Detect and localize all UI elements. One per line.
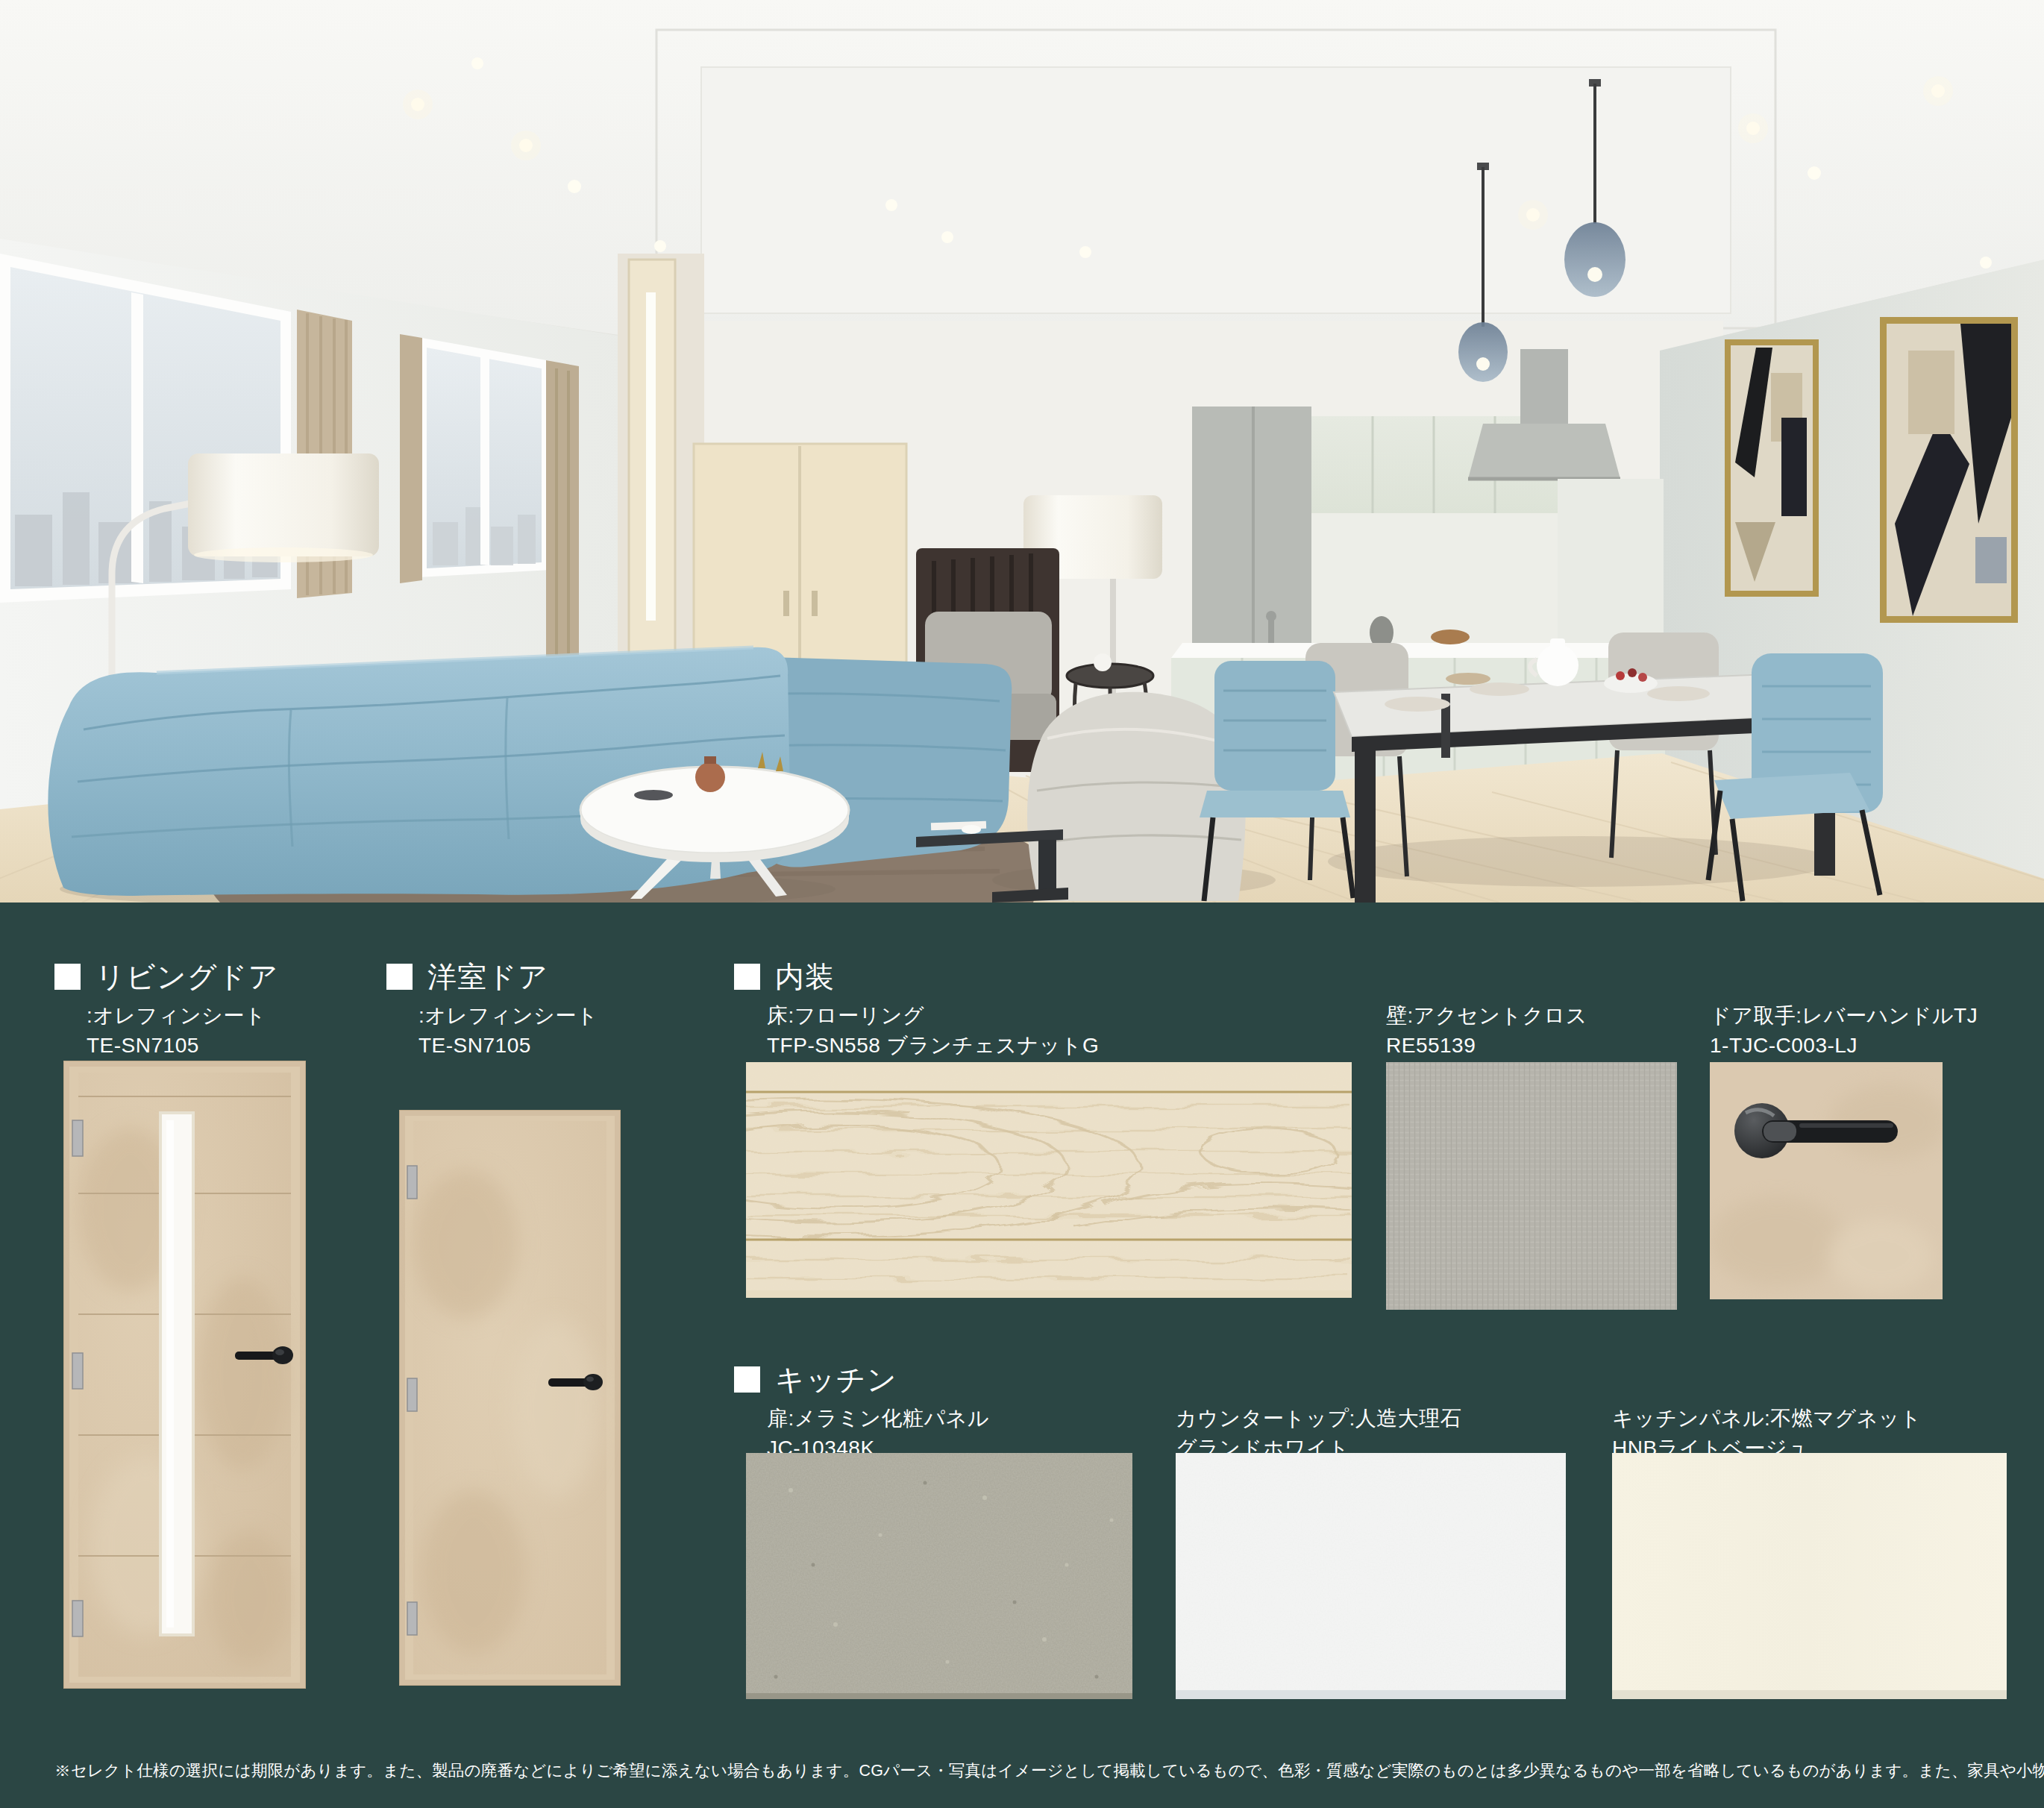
section-kitchen-header: キッチン	[734, 1365, 897, 1394]
artwork	[1880, 317, 2018, 623]
section-title: 内装	[775, 962, 835, 991]
section-bullet-icon	[54, 964, 81, 990]
western-door-spec: :オレフィンシート TE-SN7105	[418, 1001, 598, 1061]
wall-spec: 壁:アクセントクロス RE55139	[1386, 1001, 1587, 1061]
kitchen-panel-swatch	[1612, 1453, 2007, 1699]
door-handle-swatch	[1710, 1062, 1943, 1299]
window	[418, 337, 551, 577]
section-living-door-header: リビングドア	[54, 962, 278, 991]
wall-swatch	[1386, 1062, 1677, 1310]
section-title: リビングドア	[95, 962, 278, 991]
hero-render	[0, 0, 2044, 903]
disclaimer-text: ※セレクト仕様の選択には期限があります。また、製品の廃番などによりご希望に添えな…	[54, 1760, 2024, 1782]
living-door-spec: :オレフィンシート TE-SN7105	[87, 1001, 266, 1061]
section-bullet-icon	[386, 964, 413, 990]
section-title: キッチン	[775, 1365, 897, 1394]
artwork	[1725, 339, 1819, 597]
section-western-door-header: 洋室ドア	[386, 962, 548, 991]
section-title: 洋室ドア	[427, 962, 548, 991]
door-handle-spec: ドア取手:レバーハンドルTJ 1-TJC-C003-LJ	[1710, 1001, 1978, 1061]
section-bullet-icon	[734, 964, 760, 990]
countertop-swatch	[1176, 1453, 1566, 1699]
kitchen-door-swatch	[746, 1453, 1132, 1699]
section-interior-header: 内装	[734, 962, 835, 991]
blue-sofa	[48, 647, 1012, 896]
flooring-swatch	[746, 1062, 1352, 1298]
living-door-image	[63, 1061, 306, 1689]
western-door-image	[399, 1110, 621, 1686]
section-bullet-icon	[734, 1366, 760, 1393]
flooring-spec: 床:フローリング TFP-SN558 ブランチェスナットG	[767, 1001, 1099, 1061]
